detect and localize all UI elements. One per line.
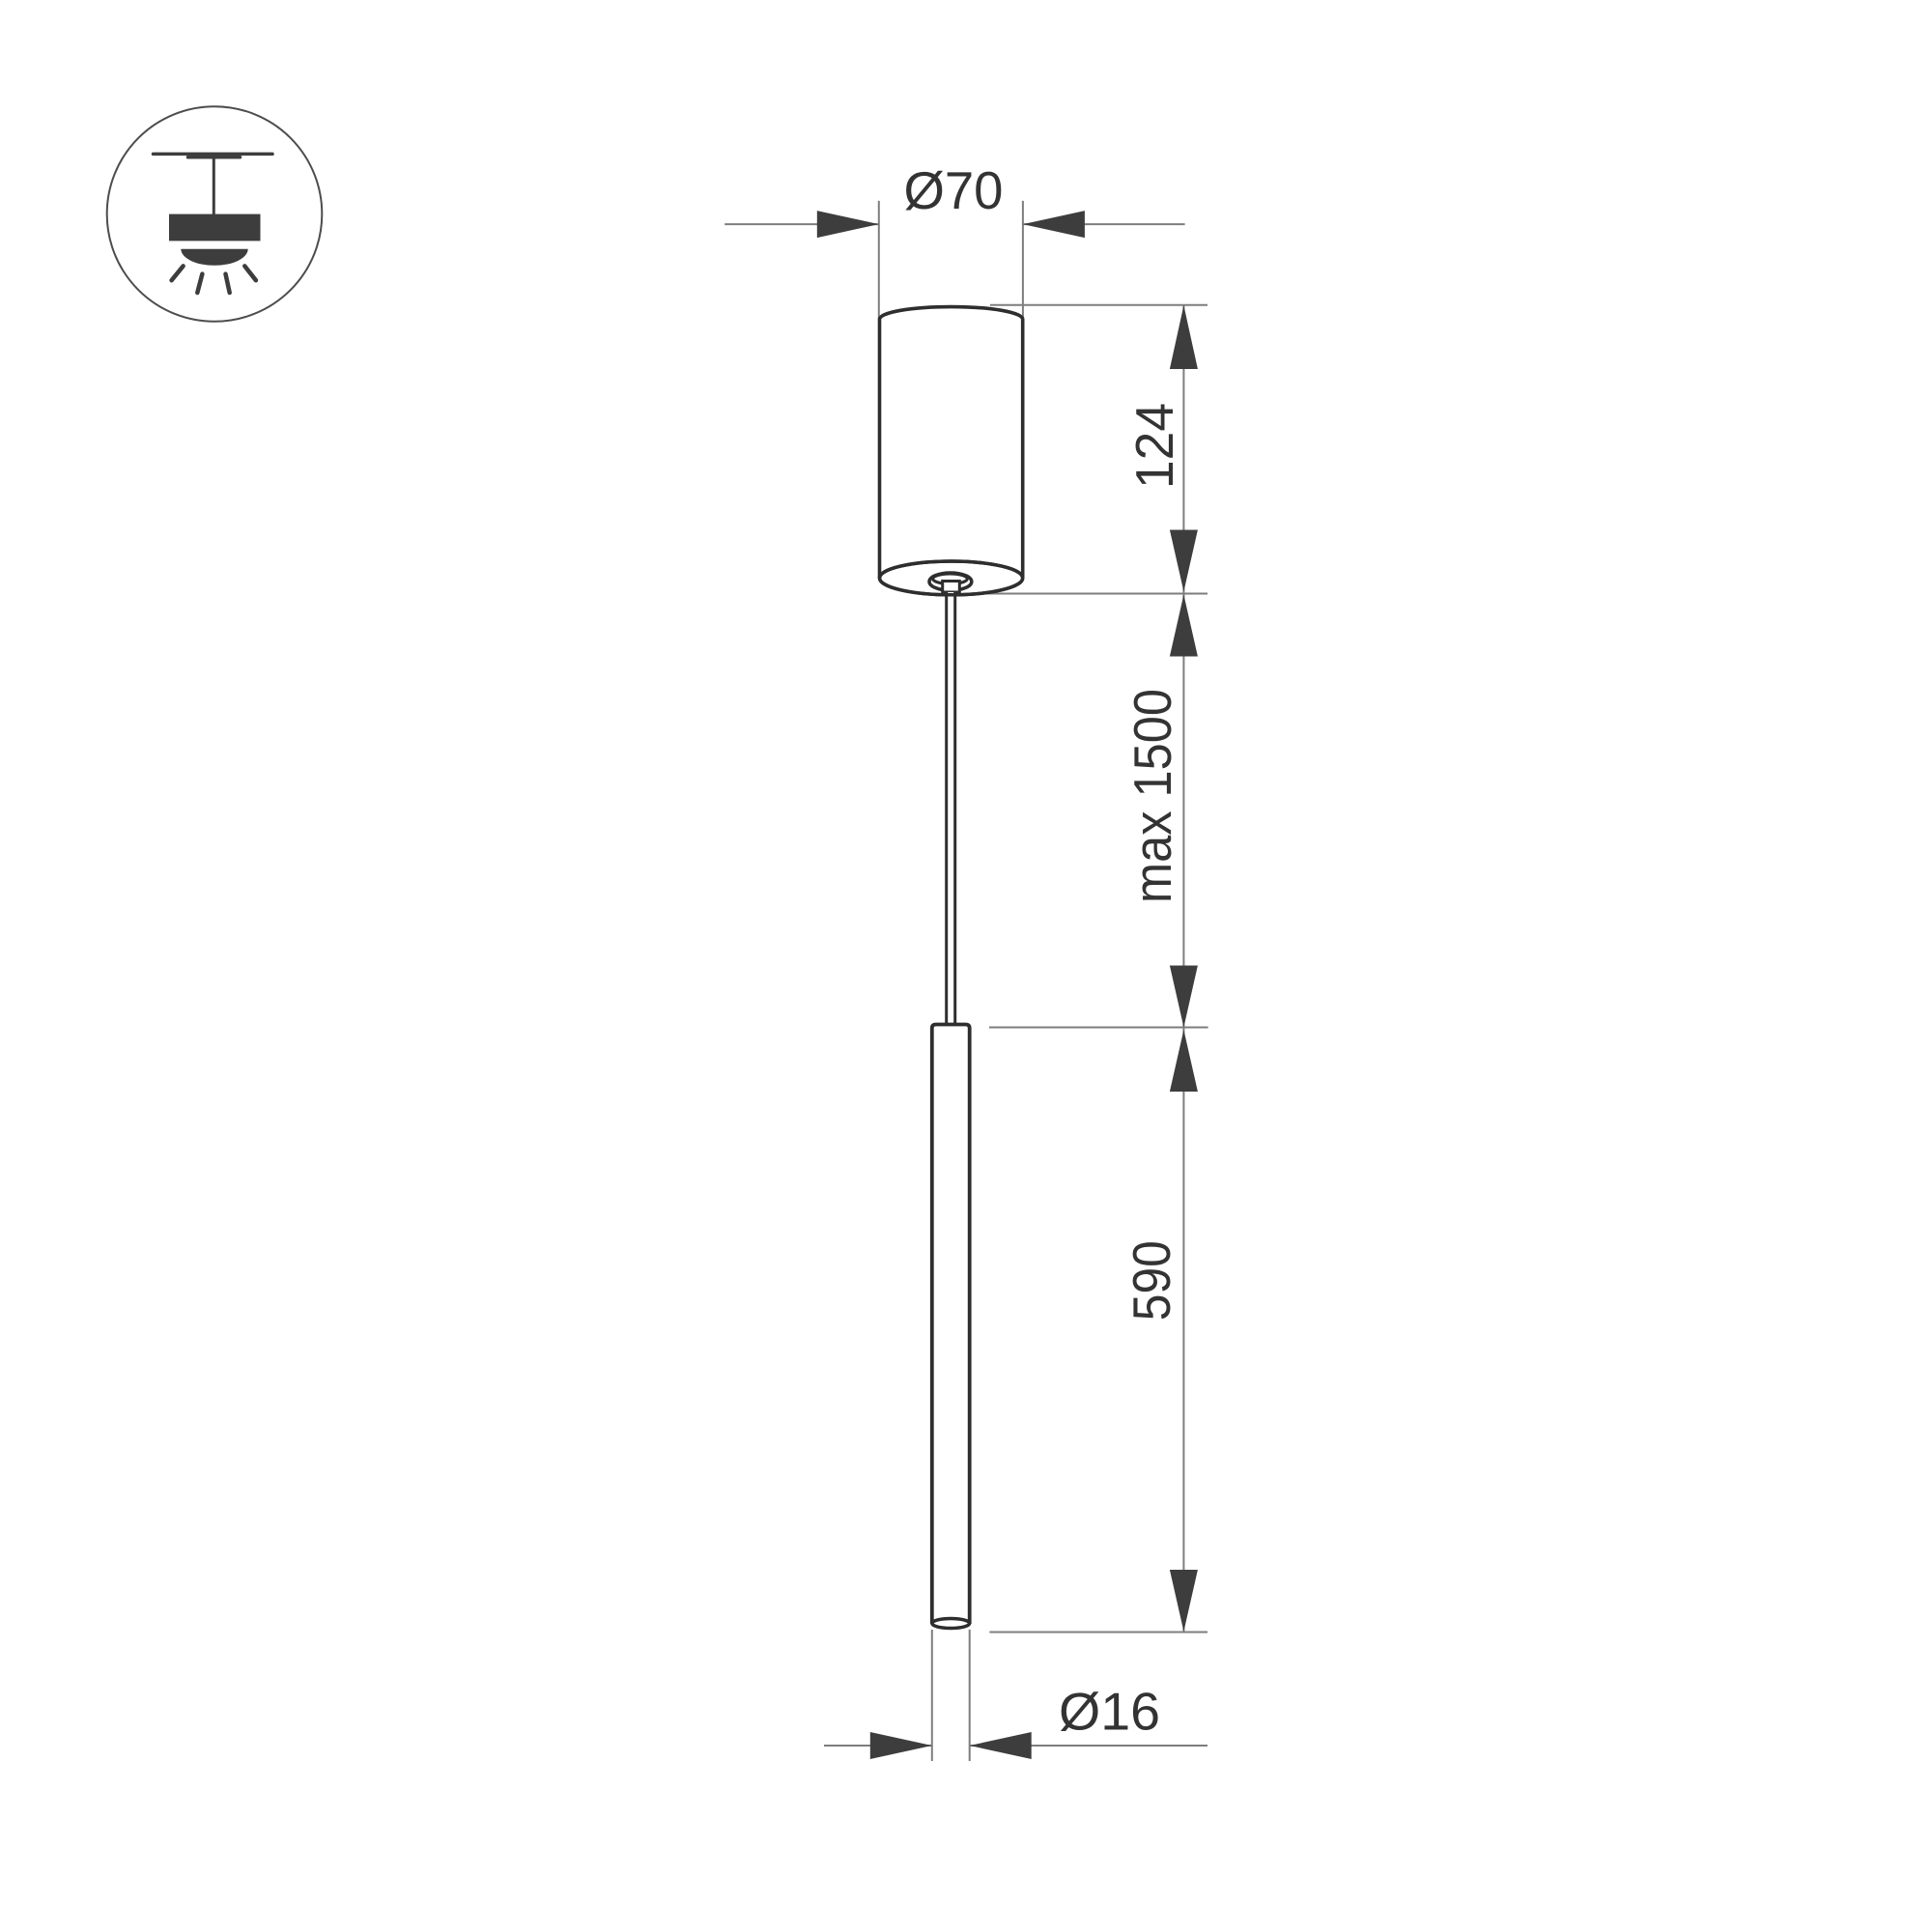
svg-text:Ø16: Ø16: [1059, 1682, 1160, 1742]
svg-text:590: 590: [1122, 1240, 1181, 1321]
svg-text:Ø70: Ø70: [904, 160, 1004, 220]
svg-text:124: 124: [1124, 403, 1184, 489]
svg-text:max 1500: max 1500: [1122, 689, 1182, 903]
